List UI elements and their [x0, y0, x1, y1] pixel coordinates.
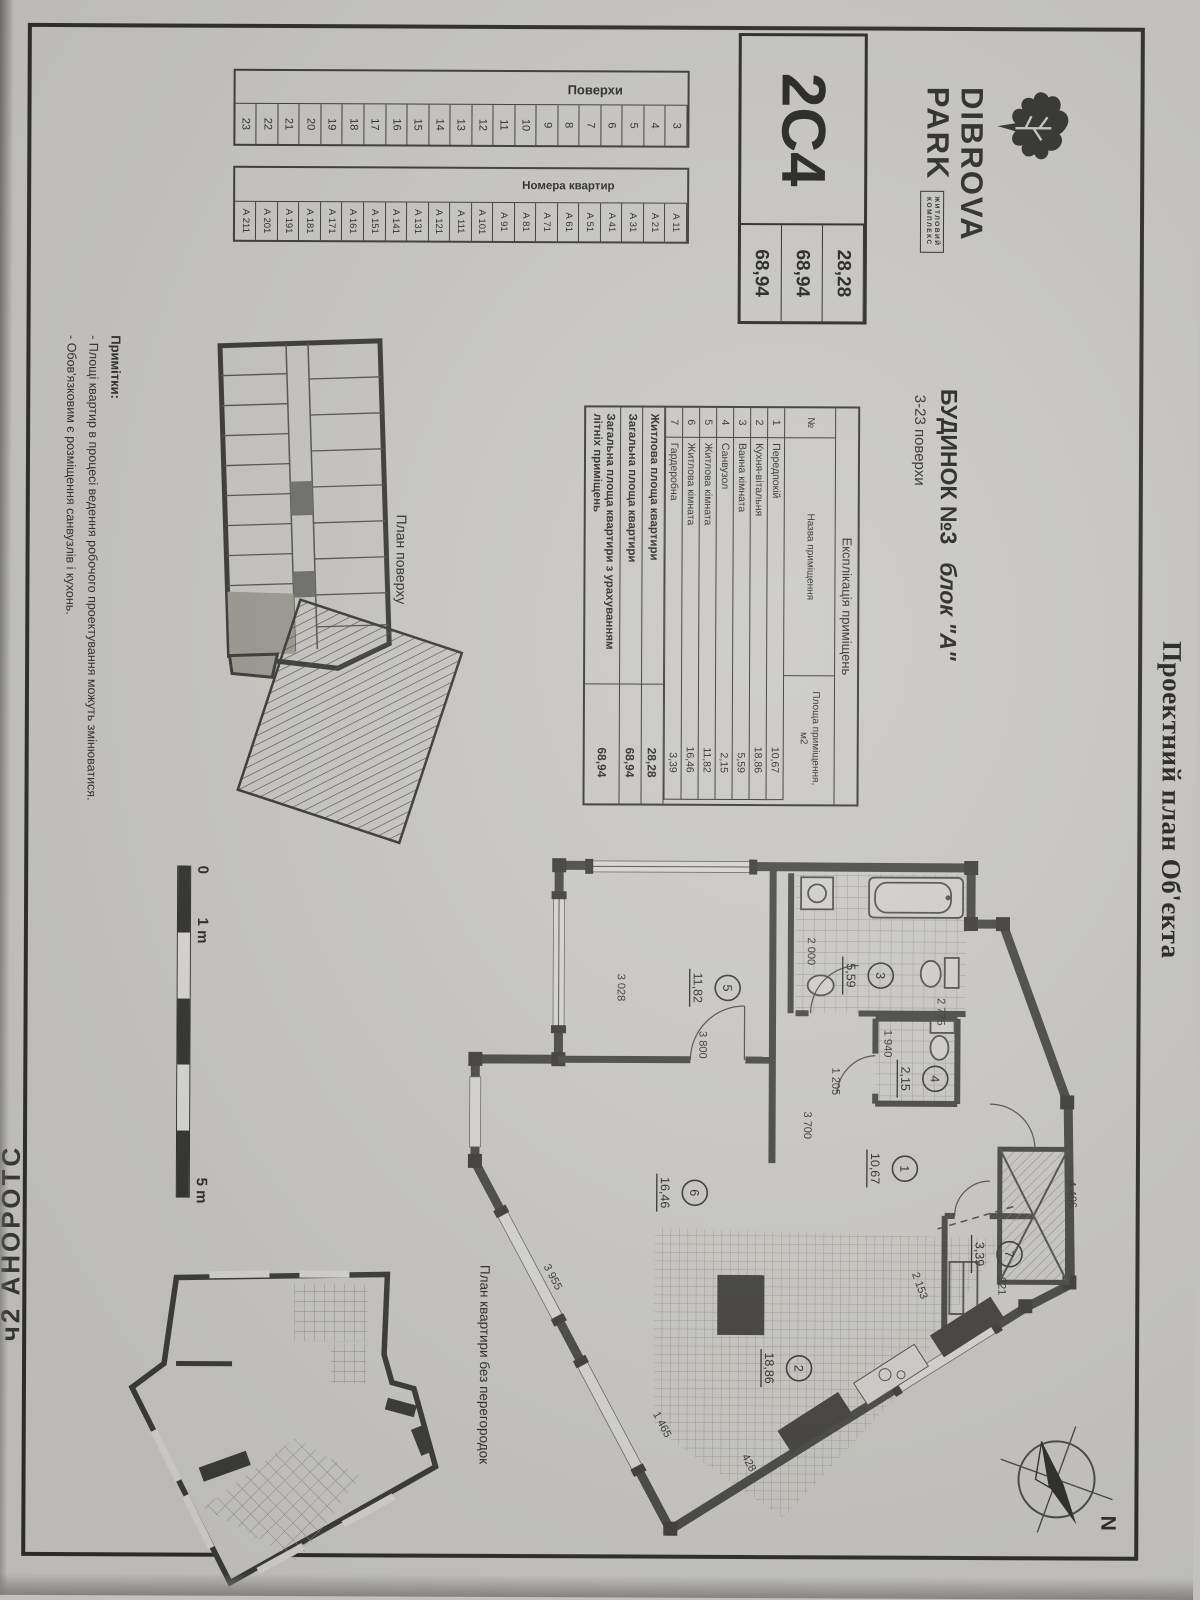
- row-no: 3: [733, 408, 750, 438]
- svg-text:11,82: 11,82: [691, 973, 705, 1003]
- svg-text:1 205: 1 205: [829, 1068, 841, 1096]
- apartment-cell: А 191: [278, 202, 300, 240]
- row-name: Гардеробна: [664, 438, 682, 676]
- apartment-cell: А 61: [558, 203, 580, 241]
- unit-areas: 28,2868,9468,94: [741, 225, 864, 322]
- summary-label: Загальна площа квартири: [620, 407, 642, 683]
- floor-cell: 22: [257, 104, 279, 144]
- floor-cell: 11: [494, 105, 516, 145]
- apartment-cell: А 161: [342, 202, 364, 240]
- page-edge-shadow-right: [0, 1573, 1193, 1600]
- floor-cell: 5: [623, 105, 645, 145]
- svg-text:1 940: 1 940: [881, 1030, 893, 1058]
- apartment-cell: А 201: [256, 202, 278, 240]
- outline-plan-caption: План квартири без перегородок: [477, 1265, 493, 1464]
- plan-sheet: Проектний план Об'єкта DIBROVA PARK ЖИТЛ…: [0, 0, 1200, 1600]
- explication-title: Експлікація приміщень: [833, 408, 858, 804]
- sc0: 0: [194, 866, 211, 874]
- notes-title: Примітки:: [101, 335, 127, 1165]
- north-needle: [1041, 1441, 1076, 1524]
- floor-cell: 18: [343, 104, 365, 144]
- floor-cell: 12: [472, 105, 494, 145]
- svg-text:3: 3: [873, 972, 887, 979]
- svg-text:3,39: 3,39: [972, 1242, 986, 1266]
- svg-text:4: 4: [928, 1075, 942, 1082]
- floor-cell: 10: [515, 105, 537, 145]
- svg-text:16,46: 16,46: [658, 1177, 672, 1208]
- apartment-cell: А 141: [386, 202, 408, 240]
- building-floors: 3-23 поверхи: [909, 395, 928, 809]
- logo-line1: DIBROVA: [954, 87, 989, 337]
- row-area: 18,86: [749, 676, 767, 800]
- row-no: 7: [665, 408, 682, 438]
- row-no: 5: [699, 408, 716, 438]
- summary-value: 68,94: [619, 683, 641, 803]
- svg-text:5,59: 5,59: [844, 963, 858, 987]
- floor-cell: 20: [300, 104, 322, 144]
- row-area: 5,59: [732, 676, 750, 800]
- svg-text:2,15: 2,15: [898, 1067, 912, 1091]
- col-header-area: Площа приміщення, м2: [783, 676, 835, 800]
- summary-value: 68,94: [584, 683, 619, 803]
- svg-text:10,67: 10,67: [868, 1153, 882, 1184]
- north-compass: [983, 1399, 1134, 1570]
- row-name: Кухня-вітальня: [749, 438, 767, 676]
- row-no: 1: [767, 408, 784, 438]
- svg-text:2: 2: [792, 1365, 806, 1372]
- notes-block: Примітки: - Площі квартир в процесі веде…: [57, 335, 127, 1165]
- floor-cell: 14: [429, 105, 451, 145]
- apartment-cell: А 151: [364, 202, 386, 240]
- explication-summary: Житлова площа квартири 28,28 Загальна пл…: [584, 407, 665, 803]
- svg-text:2 775: 2 775: [935, 998, 947, 1026]
- svg-text:4 406: 4 406: [1065, 1181, 1078, 1209]
- col-header-name: Назва приміщення: [783, 438, 835, 676]
- floors-header: Поверхи: [568, 82, 623, 97]
- row-area: 3,39: [664, 676, 682, 800]
- floor-cell: 8: [558, 105, 580, 145]
- note-line: - Площі квартир в процесі ведення робочо…: [79, 335, 105, 1165]
- dibrova-park-logo: DIBROVA PARK ЖИТЛОВИЙКОМПЛЕКС: [920, 87, 1072, 338]
- unit-area-value: 28,28: [823, 225, 864, 321]
- floor-cell: 23: [235, 104, 257, 144]
- apartment-cell: А 11: [665, 204, 687, 242]
- apartment-cell: А 121: [429, 203, 451, 241]
- note-line: - Обов'язковим є розміщення санвузлів і …: [57, 335, 83, 1165]
- apartment-cell: А 81: [515, 203, 537, 241]
- outline-plan-drawing: [123, 1250, 455, 1596]
- apartment-numbers-table: Номера квартир А 11А 21А 31А 41А 51А 61А…: [233, 166, 689, 244]
- scale-bar: 0 1 m 5 m: [176, 866, 211, 1206]
- page-title: Проектний план Об'єкта: [1152, 0, 1190, 1600]
- sink: [808, 975, 834, 995]
- svg-text:2 000: 2 000: [805, 938, 817, 966]
- apartment-cell: А 91: [493, 203, 515, 241]
- floor-cell: 21: [278, 104, 300, 144]
- apartment-cell: А 131: [407, 203, 429, 241]
- row-area: 11,82: [698, 676, 716, 800]
- unit-card: 2С4 28,2868,9468,94: [738, 33, 868, 325]
- sc5: 5 m: [193, 1178, 210, 1204]
- explication-rows: 1 Передпокій 10,67 2 Кухня-вітальня 18,8…: [663, 408, 784, 805]
- row-name: Житлова кімната: [698, 438, 716, 676]
- svg-text:921: 921: [995, 1277, 1007, 1295]
- col-header-no: №: [784, 408, 835, 438]
- unit-area-value: 68,94: [782, 225, 823, 321]
- apartment-cell: А 51: [579, 203, 601, 241]
- floor-cell: 13: [451, 105, 473, 145]
- svg-text:3 700: 3 700: [801, 1112, 813, 1140]
- oak-leaf-icon: [993, 87, 1071, 169]
- north-label: N: [1095, 1516, 1119, 1531]
- floor-cell: 19: [321, 104, 343, 144]
- floor-plan-drawing: [211, 331, 468, 902]
- row-no: 6: [682, 408, 699, 438]
- floor-plan-caption: План поверху: [393, 514, 409, 604]
- svg-text:7: 7: [1002, 1251, 1016, 1258]
- apartment-cell: А 181: [299, 202, 321, 240]
- summary-label: Житлова площа квартири: [642, 408, 664, 684]
- row-area: 2,15: [715, 676, 733, 800]
- svg-text:5: 5: [720, 984, 734, 991]
- floor-cell: 16: [386, 104, 408, 144]
- washing-machine: [801, 877, 833, 909]
- svg-text:3 028: 3 028: [615, 974, 627, 1002]
- svg-text:3 800: 3 800: [696, 1031, 708, 1059]
- row-area: 16,46: [681, 676, 699, 800]
- apartment-cell: А 101: [472, 203, 494, 241]
- row-no: 2: [750, 408, 767, 438]
- toilet-wc: [930, 1036, 948, 1060]
- svg-text:1: 1: [897, 1165, 911, 1172]
- unit-code: 2С4: [741, 36, 865, 226]
- row-name: Санвузол: [715, 438, 733, 676]
- apartment-cell: А 211: [235, 202, 257, 240]
- floor-cell: 6: [601, 105, 623, 145]
- svg-text:18,86: 18,86: [762, 1352, 776, 1383]
- row-name: Житлова кімната: [681, 438, 699, 676]
- sc1: 1 m: [194, 918, 211, 944]
- scanned-sheet-stage: Проектний план Об'єкта DIBROVA PARK ЖИТЛ…: [0, 0, 1200, 1600]
- row-area: 10,67: [766, 676, 784, 800]
- logo-line2: PARK: [920, 87, 954, 181]
- row-no: 4: [716, 408, 733, 438]
- apartment-cell: А 171: [321, 202, 343, 240]
- apartment-cell: А 71: [536, 203, 558, 241]
- summary-label: Загальна площа квартири з урахуванням лі…: [585, 407, 620, 683]
- apartment-cell: А 21: [644, 204, 666, 242]
- floors-table: Поверхи 34567891011121314151617181920212…: [233, 69, 689, 148]
- floor-cell: 9: [537, 105, 559, 145]
- apartments-header: Номера квартир: [522, 180, 614, 192]
- logo-tagline: ЖИТЛОВИЙКОМПЛЕКС: [920, 190, 944, 252]
- toilet: [921, 961, 941, 987]
- row-name: Передпокій: [766, 438, 784, 676]
- floor-cell: 4: [644, 106, 666, 146]
- floor-cell: 17: [364, 104, 386, 144]
- apartment-cell: А 111: [450, 203, 472, 241]
- explication-table: Експлікація приміщень № Назва приміщення…: [582, 405, 860, 806]
- building-heading: БУДИНОК №3блок "А" 3-23 поверхи: [909, 389, 962, 809]
- building-block: блок "А": [935, 562, 961, 661]
- apartment-cell: А 31: [622, 203, 644, 241]
- floor-cell: 7: [580, 105, 602, 145]
- apartment-cell: А 41: [601, 203, 623, 241]
- unit-area-value: 68,94: [741, 225, 782, 321]
- svg-text:6: 6: [687, 1189, 701, 1196]
- building-title: БУДИНОК №3: [936, 389, 963, 544]
- floor-cell: 15: [407, 105, 429, 145]
- balcony: [999, 1149, 1068, 1282]
- row-name: Ванна кімната: [732, 438, 750, 676]
- floor-cell: 3: [666, 106, 688, 146]
- summary-value: 28,28: [641, 684, 663, 804]
